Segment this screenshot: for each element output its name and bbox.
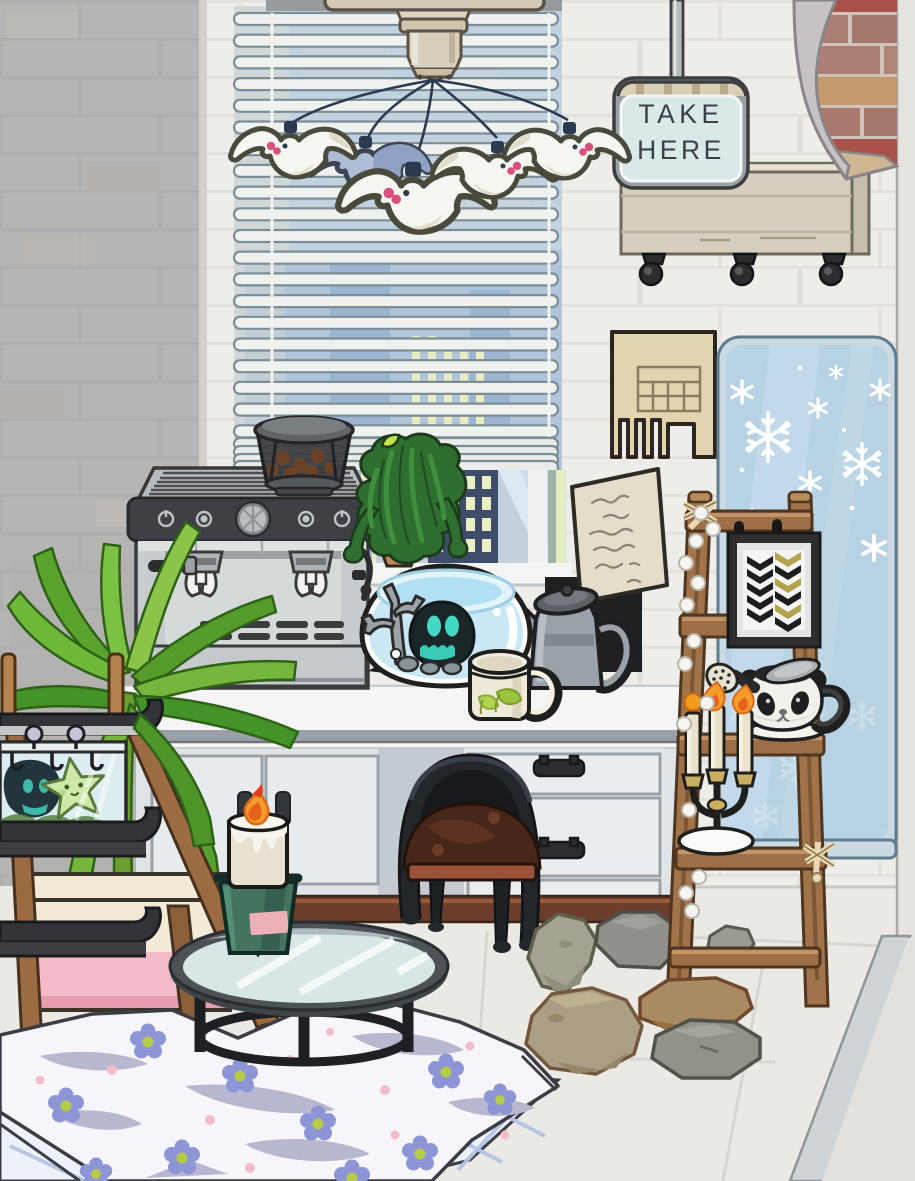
svg-text:HERE: HERE: [637, 135, 725, 165]
svg-text:TAKE: TAKE: [638, 99, 723, 129]
